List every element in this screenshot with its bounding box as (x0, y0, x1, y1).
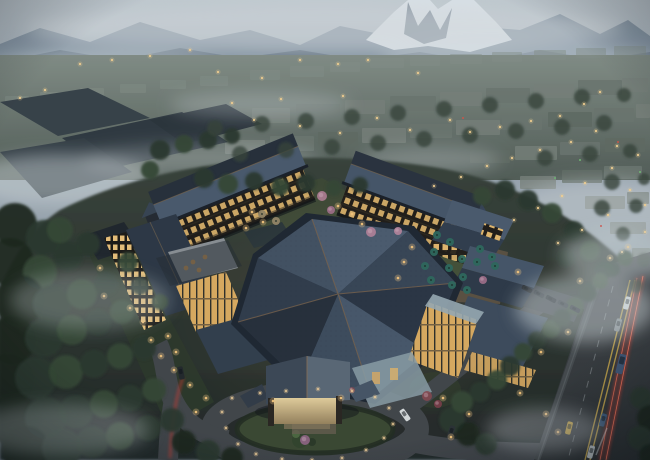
aerial-architectural-render (0, 0, 650, 460)
vignette (0, 0, 650, 460)
scene-svg (0, 0, 650, 460)
